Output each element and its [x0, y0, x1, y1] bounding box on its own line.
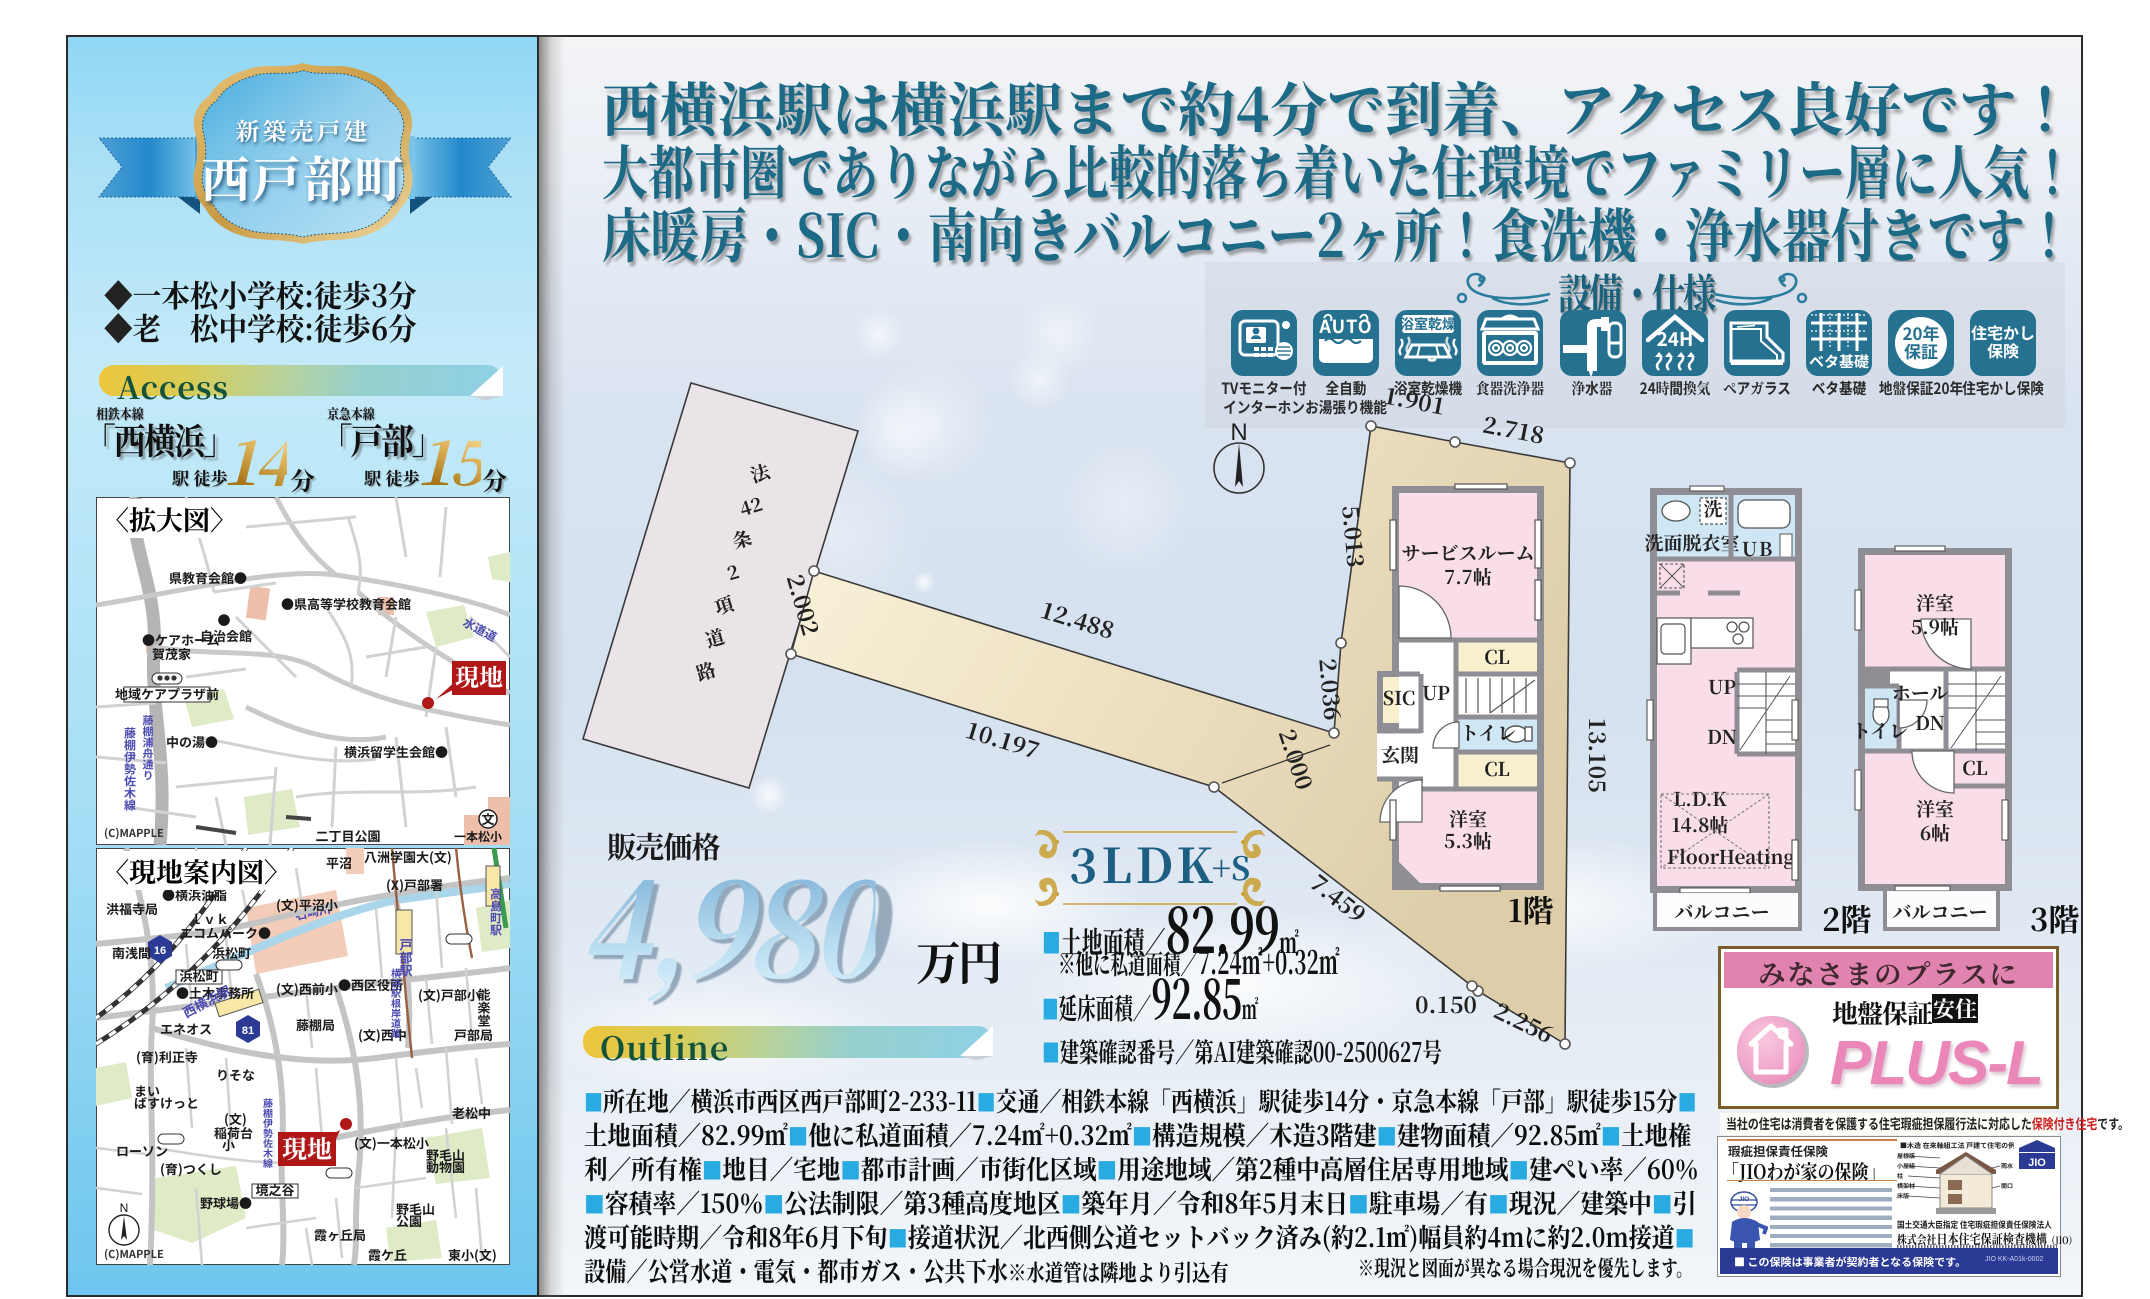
- svg-text:JIO: JIO: [2028, 1157, 2046, 1169]
- svg-text:柱: 柱: [1897, 1171, 1903, 1180]
- svg-text:開口: 開口: [2001, 1181, 2013, 1190]
- svg-text:雨水: 雨水: [2001, 1161, 2013, 1170]
- svg-text:横架材: 横架材: [1897, 1181, 1915, 1190]
- svg-text:洗面脱衣室: 洗面脱衣室: [1644, 529, 1739, 556]
- svg-text:洋室: 洋室: [1916, 795, 1954, 822]
- svg-text:DN: DN: [1707, 723, 1737, 750]
- svg-text:FloorHeating: FloorHeating: [1667, 843, 1795, 870]
- svg-text:屋根版: 屋根版: [1897, 1151, 1915, 1160]
- svg-text:小屋組: 小屋組: [1897, 1161, 1915, 1170]
- svg-text:■木造 在来軸組工法 戸建て住宅の例: ■木造 在来軸組工法 戸建て住宅の例: [1900, 1141, 2014, 1151]
- svg-text:バルコニー: バルコニー: [1892, 898, 1987, 925]
- svg-text:3階: 3階: [2030, 895, 2079, 940]
- svg-text:ホール: ホール: [1892, 679, 1949, 706]
- svg-text:床版: 床版: [1897, 1191, 1909, 1200]
- svg-text:洗: 洗: [1703, 495, 1722, 522]
- svg-text:JIO: JIO: [1739, 1196, 1749, 1203]
- svg-text:DN: DN: [1915, 709, 1945, 736]
- svg-text:2階: 2階: [1822, 895, 1871, 940]
- svg-text:トイレ: トイレ: [1852, 717, 1908, 744]
- svg-text:CL: CL: [1962, 754, 1988, 781]
- svg-text:L.D.K: L.D.K: [1673, 785, 1727, 812]
- svg-text:5.9帖: 5.9帖: [1911, 613, 1959, 640]
- svg-text:洋室: 洋室: [1916, 589, 1954, 616]
- svg-text:UP: UP: [1708, 673, 1736, 700]
- svg-text:バルコニー: バルコニー: [1674, 898, 1769, 925]
- svg-text:6帖: 6帖: [1920, 819, 1950, 846]
